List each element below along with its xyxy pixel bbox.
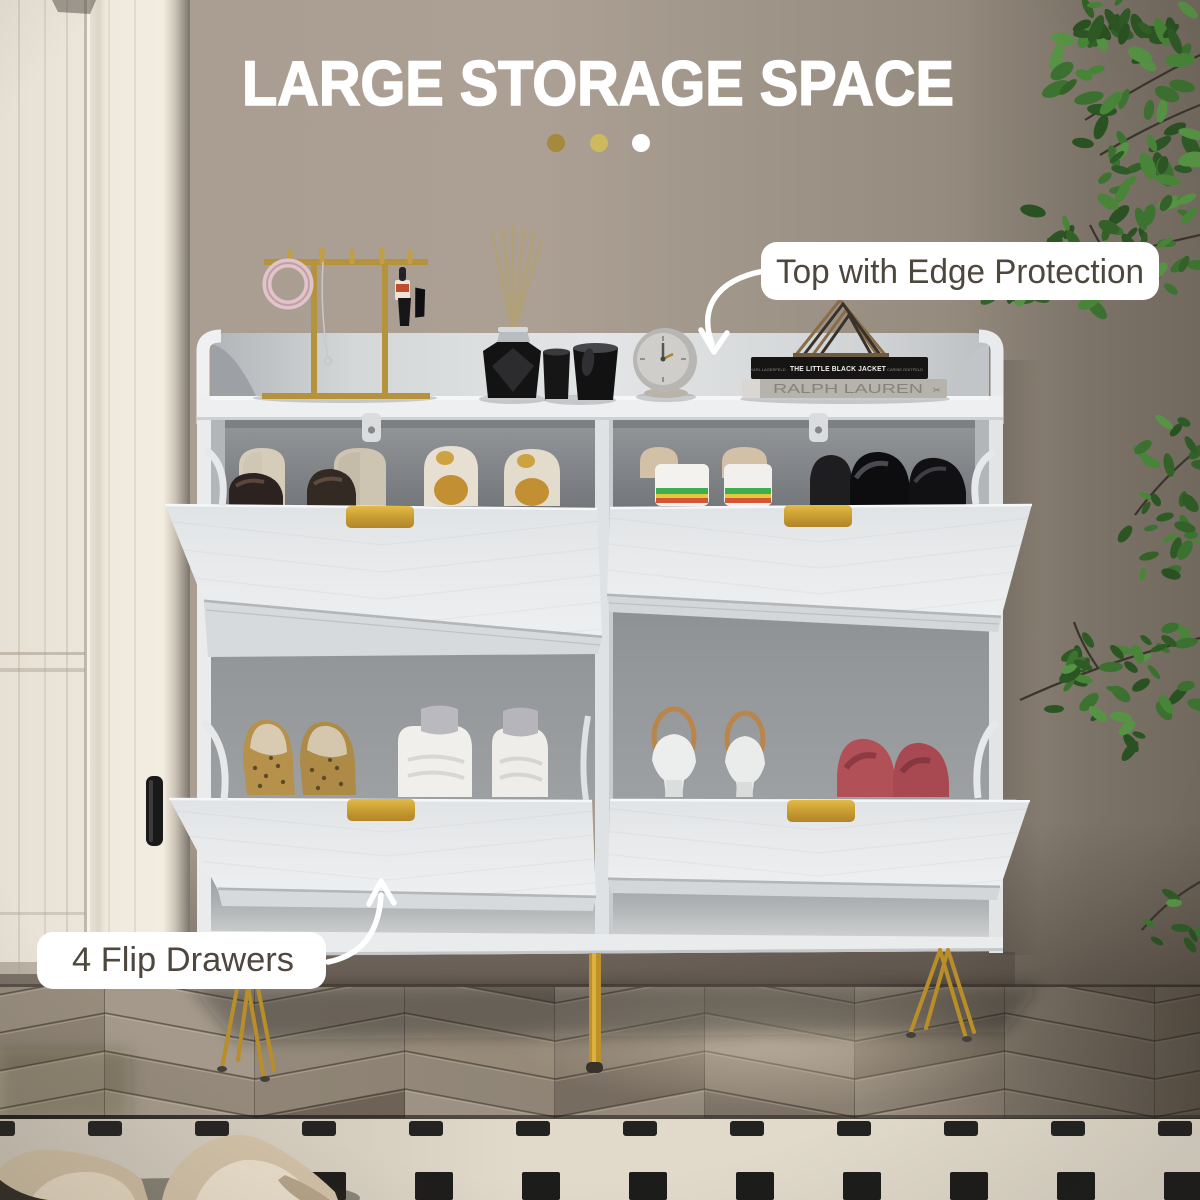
svg-text:Top with Edge Protection: Top with Edge Protection [776,253,1144,291]
svg-text:LARGE STORAGE SPACE: LARGE STORAGE SPACE [242,49,954,119]
svg-text:4 Flip Drawers: 4 Flip Drawers [72,941,294,979]
